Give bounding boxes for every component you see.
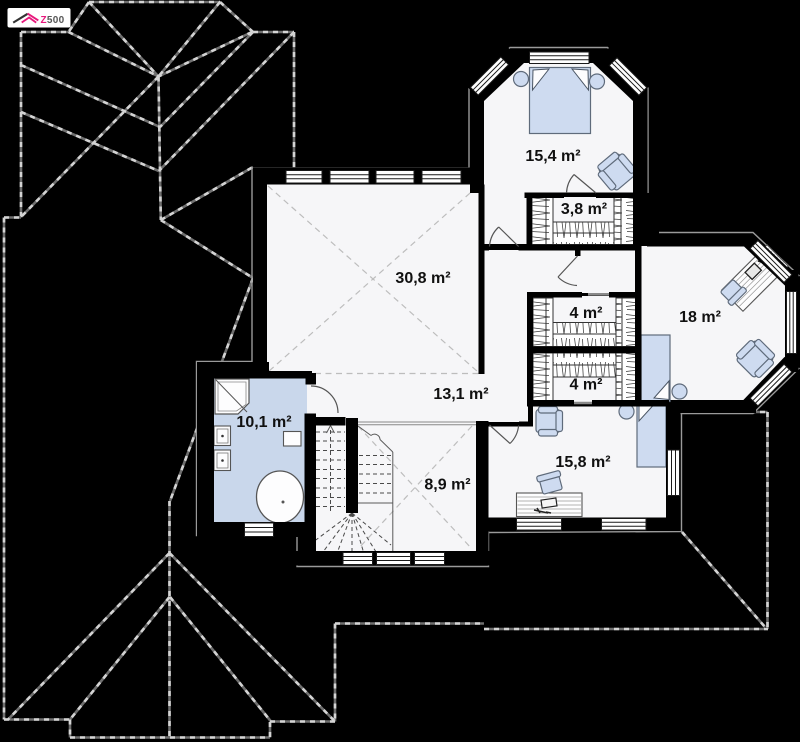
svg-text:8,9 m²: 8,9 m² bbox=[424, 477, 470, 494]
svg-text:30,8 m²: 30,8 m² bbox=[395, 270, 450, 287]
svg-text:13,1 m²: 13,1 m² bbox=[433, 386, 488, 403]
svg-text:15,4 m²: 15,4 m² bbox=[525, 148, 580, 165]
svg-text:10,1 m²: 10,1 m² bbox=[236, 414, 291, 431]
svg-text:Z500: Z500 bbox=[41, 15, 65, 26]
svg-text:4 m²: 4 m² bbox=[570, 377, 603, 394]
svg-text:4 m²: 4 m² bbox=[570, 305, 603, 322]
svg-text:18 m²: 18 m² bbox=[679, 309, 721, 326]
svg-text:15,8 m²: 15,8 m² bbox=[555, 454, 610, 471]
svg-text:3,8 m²: 3,8 m² bbox=[561, 201, 607, 218]
